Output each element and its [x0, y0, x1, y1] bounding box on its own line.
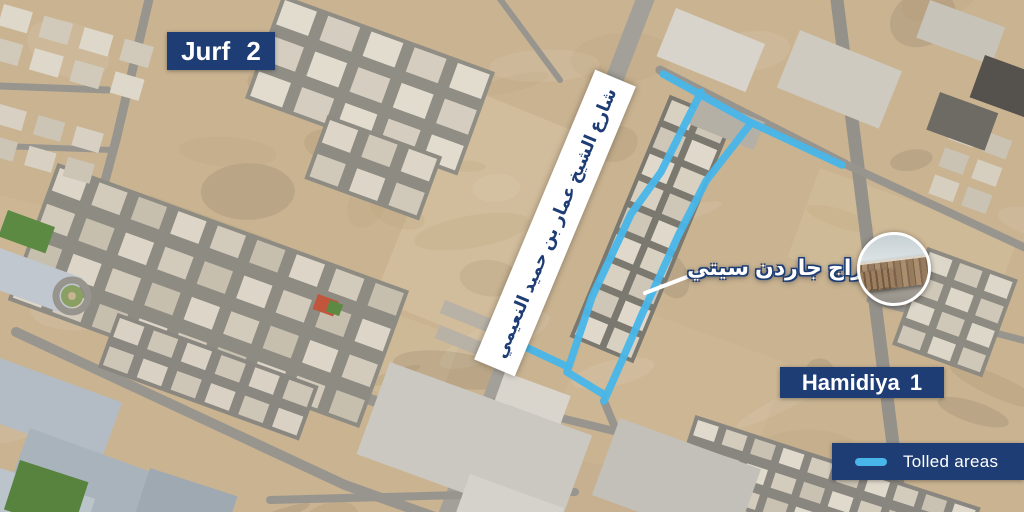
region-label-hamidiya-1-text: Hamidiya 1 — [802, 370, 922, 396]
legend-label: Tolled areas — [903, 452, 998, 472]
map-root: شارع الشيخ عمار بن حميد النعيمي Jurf 2 H… — [0, 0, 1024, 512]
poi-callout-text: أبراج جاردن سيتي — [687, 255, 881, 281]
region-label-jurf-2: Jurf 2 — [167, 32, 275, 70]
legend-tolled-swatch — [855, 458, 887, 466]
region-label-hamidiya-1: Hamidiya 1 — [780, 367, 944, 398]
region-label-jurf-2-text: Jurf 2 — [181, 36, 261, 67]
legend: Tolled areas — [832, 443, 1024, 480]
poi-callout-label: أبراج جاردن سيتي — [700, 250, 868, 286]
poi-photo-circle — [857, 232, 931, 306]
